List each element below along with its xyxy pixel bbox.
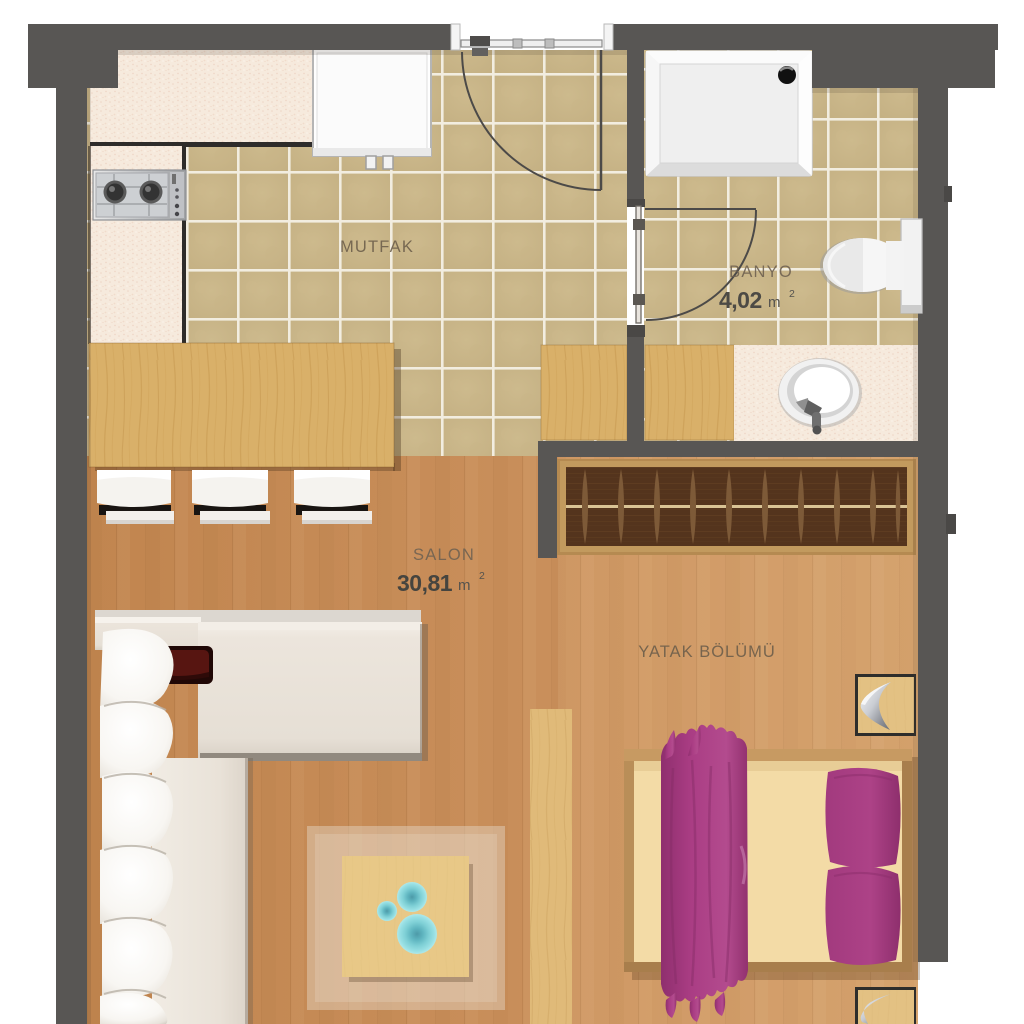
svg-text:m: m [458,577,471,594]
svg-text:m: m [768,294,781,311]
svg-text:MUTFAK: MUTFAK [340,238,414,256]
svg-text:YATAK BÖLÜMÜ: YATAK BÖLÜMÜ [638,643,776,661]
svg-text:2: 2 [479,570,485,582]
svg-text:2: 2 [789,288,795,300]
svg-text:SALON: SALON [413,546,475,564]
svg-text:4,02: 4,02 [719,287,762,313]
svg-text:BANYO: BANYO [729,263,793,281]
svg-text:30,81: 30,81 [397,570,453,596]
